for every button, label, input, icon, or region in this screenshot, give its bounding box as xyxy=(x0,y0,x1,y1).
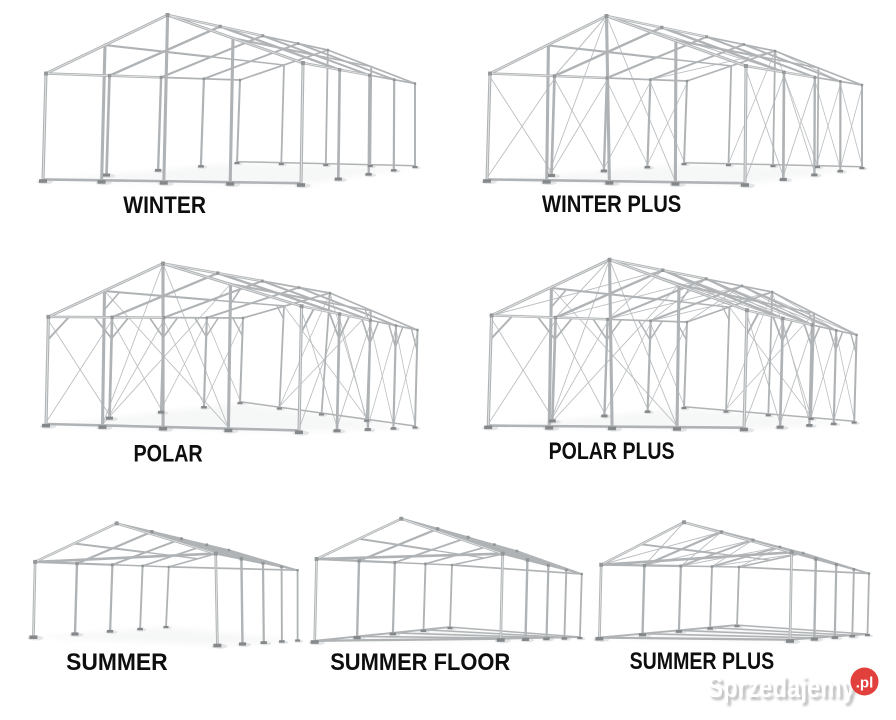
svg-text:SUMMER PLUS: SUMMER PLUS xyxy=(630,648,775,675)
svg-text:Sprzedajemy: Sprzedajemy xyxy=(707,672,855,704)
svg-text:SUMMER: SUMMER xyxy=(66,649,168,676)
svg-text:.pl: .pl xyxy=(856,675,874,692)
svg-text:POLAR: POLAR xyxy=(134,441,203,468)
svg-text:WINTER PLUS: WINTER PLUS xyxy=(542,191,681,218)
svg-text:SUMMER FLOOR: SUMMER FLOOR xyxy=(330,649,510,676)
svg-text:WINTER: WINTER xyxy=(123,192,206,219)
svg-text:POLAR PLUS: POLAR PLUS xyxy=(549,438,675,465)
